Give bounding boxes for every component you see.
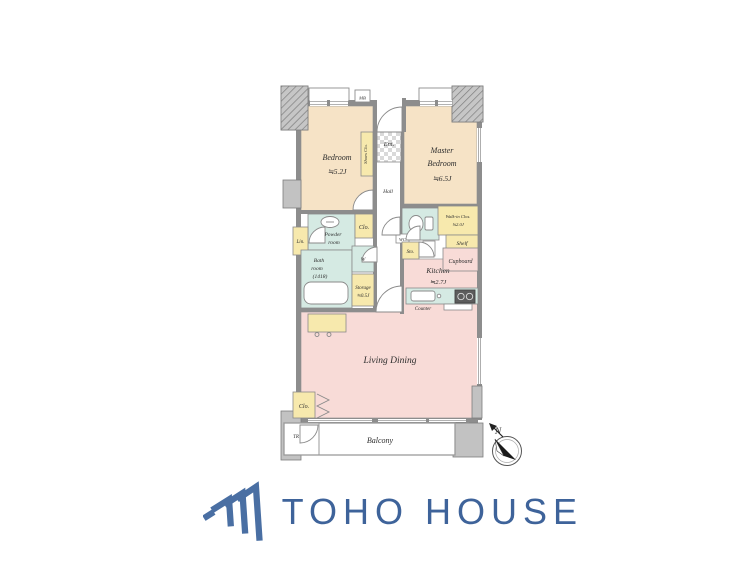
bathtub-icon bbox=[304, 282, 348, 304]
powder-label-2: room bbox=[328, 240, 339, 246]
wc-label: WC bbox=[399, 237, 407, 242]
balcony-label: Balcony bbox=[367, 436, 394, 445]
meter-box-label: MB bbox=[358, 96, 366, 101]
bay-window-master bbox=[419, 88, 452, 101]
footer-brand: TOHO HOUSE bbox=[203, 470, 583, 554]
kitchen-sink-icon bbox=[411, 291, 435, 301]
master-label-1: Master bbox=[430, 146, 455, 155]
counter-lip bbox=[444, 304, 472, 310]
powder-label-1: Powder bbox=[323, 232, 342, 238]
bath-label-2: room bbox=[311, 266, 322, 272]
master-door-arc bbox=[382, 217, 400, 235]
kitchen-size: ≒2.7J bbox=[430, 279, 448, 286]
faucet-icon bbox=[437, 294, 441, 298]
column-bottom-right bbox=[453, 423, 483, 457]
counter-label: Counter bbox=[415, 307, 431, 312]
sto-label: Sto. bbox=[407, 250, 415, 255]
built-in-counter bbox=[308, 314, 346, 332]
entrance-label: Ent. bbox=[383, 141, 395, 148]
toho-house-logo-icon bbox=[203, 472, 268, 552]
living-dining-label: Living Dining bbox=[362, 356, 416, 366]
linen-label: Lin. bbox=[296, 240, 305, 245]
shelf-label: Shelf bbox=[457, 240, 469, 247]
shoes-closet-label: Shoes Clo. bbox=[363, 144, 368, 164]
kitchen-label: Kitchen bbox=[425, 266, 450, 275]
bath-label-1: Bath bbox=[314, 258, 325, 264]
wic-label-2: ≒2.0J bbox=[452, 222, 465, 227]
bedroom-size: ≒5.2J bbox=[328, 167, 348, 176]
storage-label-2: ≒0.5J bbox=[357, 293, 370, 299]
trunk-room-label: TR bbox=[293, 435, 299, 440]
column-right-mid bbox=[472, 386, 482, 418]
hall-living-door-arc bbox=[376, 286, 402, 312]
walk-in-closet-area bbox=[438, 206, 478, 235]
column-left-mid bbox=[283, 180, 301, 208]
hall-label: Hall bbox=[382, 189, 393, 195]
floor-plan-page: Bedroom ≒5.2J Master Bedroom ≒6.5J Ent. … bbox=[0, 0, 750, 563]
brand-name: TOHO HOUSE bbox=[282, 491, 583, 533]
window-bays bbox=[309, 88, 452, 102]
bath-label-3: (1418) bbox=[313, 273, 328, 280]
master-label-2: Bedroom bbox=[427, 159, 456, 168]
washer-label: W bbox=[361, 257, 366, 263]
bedroom-label: Bedroom bbox=[322, 153, 351, 162]
north-label: N bbox=[494, 427, 502, 437]
master-size: ≒6.5J bbox=[433, 174, 453, 183]
wic-label-1: Walk-in Clos. bbox=[446, 214, 471, 219]
storage-label-1: Storage bbox=[355, 286, 371, 291]
bay-window-bedroom bbox=[309, 88, 349, 101]
cupboard-label: Cupboard bbox=[448, 259, 473, 265]
closet-bottom-label: Clo. bbox=[299, 404, 309, 410]
closet-mid-label: Clo. bbox=[359, 225, 369, 231]
toilet-tank-icon bbox=[425, 217, 433, 230]
entrance-door-arc bbox=[377, 107, 402, 132]
